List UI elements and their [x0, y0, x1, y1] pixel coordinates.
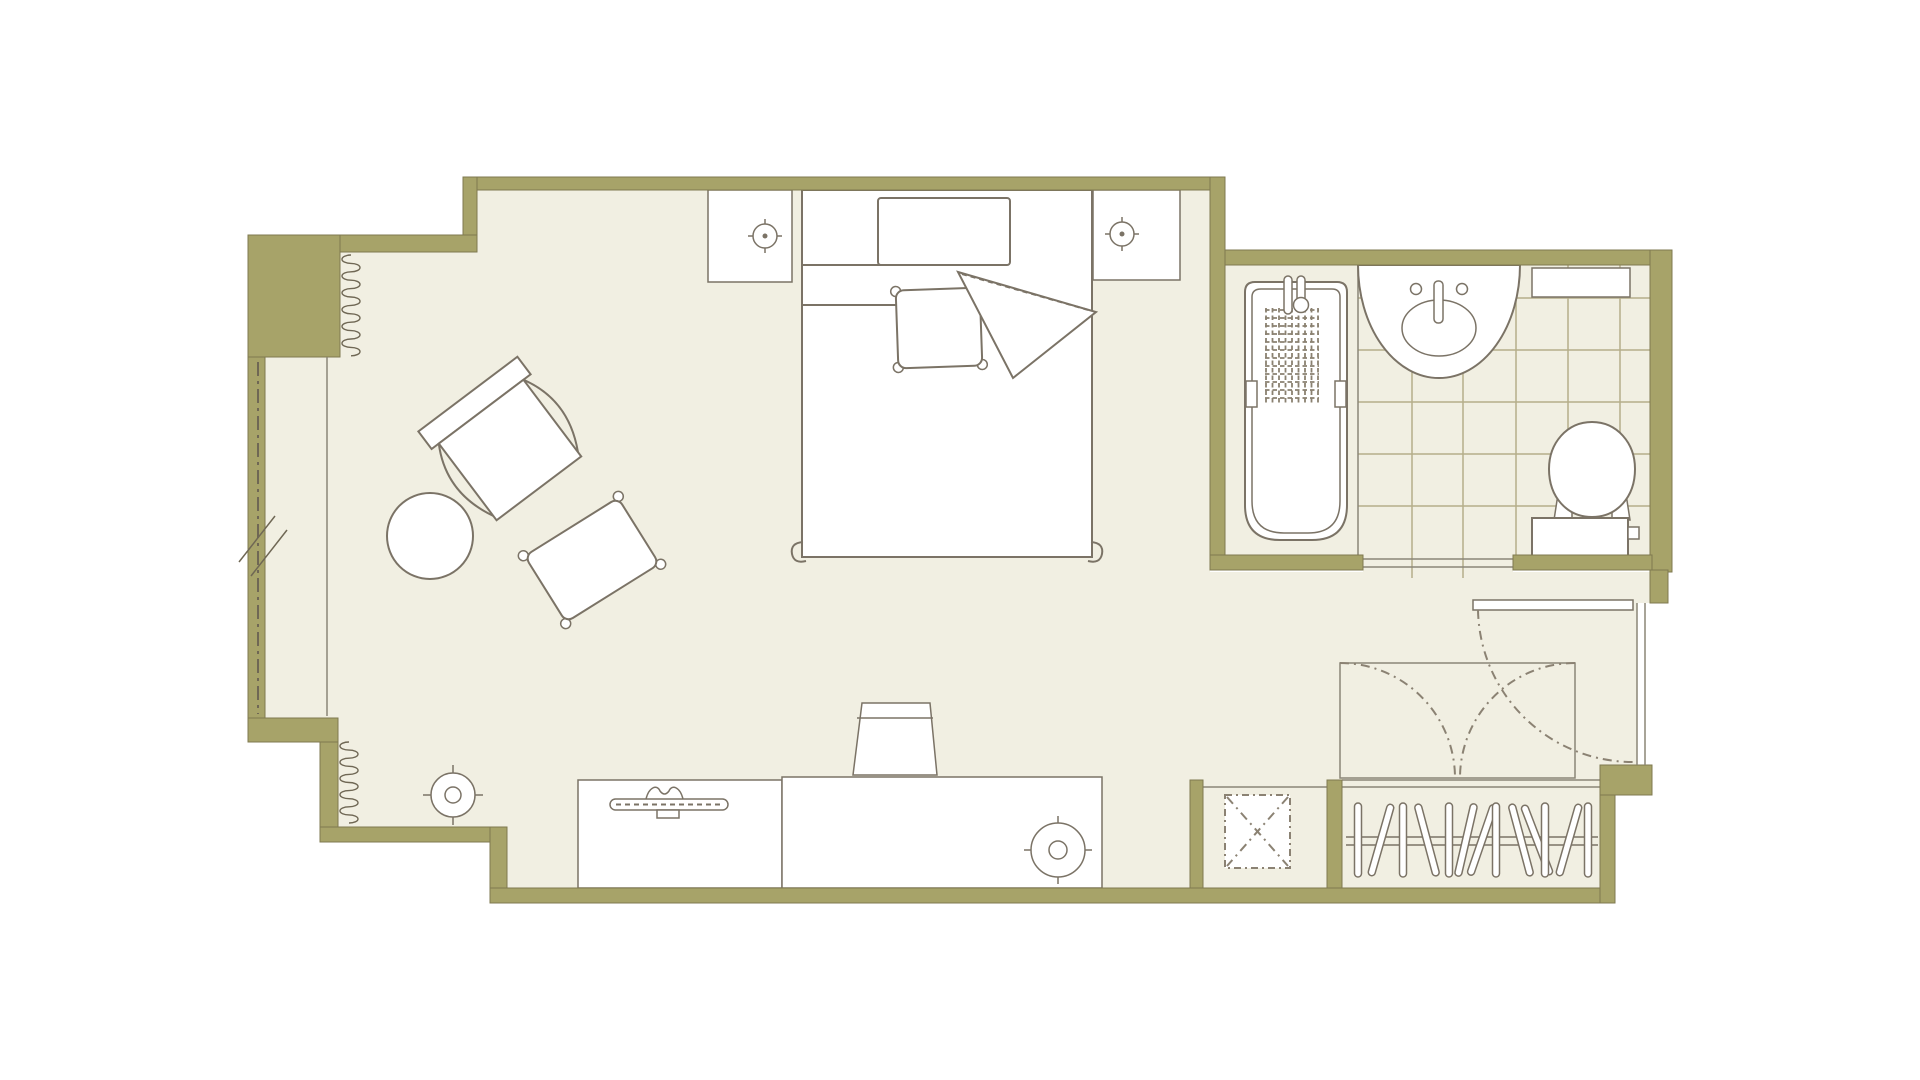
tub-faucet-icon [1284, 276, 1309, 314]
bathtub [1245, 276, 1347, 540]
wall-notch-entry-top [1650, 570, 1668, 603]
wall-bath-bottom-right [1513, 555, 1652, 570]
wall-bottom-left-v [320, 742, 338, 827]
floor-plan [0, 0, 1920, 1080]
sink-handle-left [1411, 284, 1422, 295]
entry-door-leaf [1473, 600, 1633, 610]
toilet-flush-button [1628, 527, 1639, 539]
wall-bathroom-right [1650, 250, 1672, 572]
shelf [1532, 268, 1630, 297]
toilet-tank [1532, 518, 1628, 557]
wall-top [463, 177, 1225, 190]
wall-closet-right [1600, 795, 1615, 903]
wall-corner-block [248, 235, 340, 357]
wall-step-bottom [490, 827, 507, 888]
wall-bath-bottom-left [1210, 555, 1363, 570]
tv [853, 703, 937, 775]
side-table [387, 493, 473, 579]
desk [578, 780, 782, 888]
wall-shaft-right [1327, 780, 1342, 888]
wall-shaft-left [1190, 780, 1203, 888]
nightstand-right [1093, 190, 1180, 280]
wall-band-bottom-left [320, 827, 492, 842]
wall-bottom [490, 888, 1615, 903]
tub-grab-right [1335, 381, 1346, 407]
bed [792, 190, 1103, 562]
desk-chair-support [657, 810, 679, 818]
sink-faucet-icon [1434, 281, 1443, 323]
wall-bottom-left-h [248, 718, 338, 742]
toilet-bowl [1549, 422, 1635, 517]
wall-bathroom-top [1225, 250, 1672, 265]
pillow [878, 198, 1010, 265]
floor-plan-page [0, 0, 1920, 1080]
entry-door-opening [1637, 603, 1645, 765]
tub-grab-left [1246, 381, 1257, 407]
sink-handle-right [1457, 284, 1468, 295]
wall-bathroom-left [1210, 177, 1225, 570]
wall-window-left [248, 357, 265, 718]
wall-entry-block [1600, 765, 1652, 795]
